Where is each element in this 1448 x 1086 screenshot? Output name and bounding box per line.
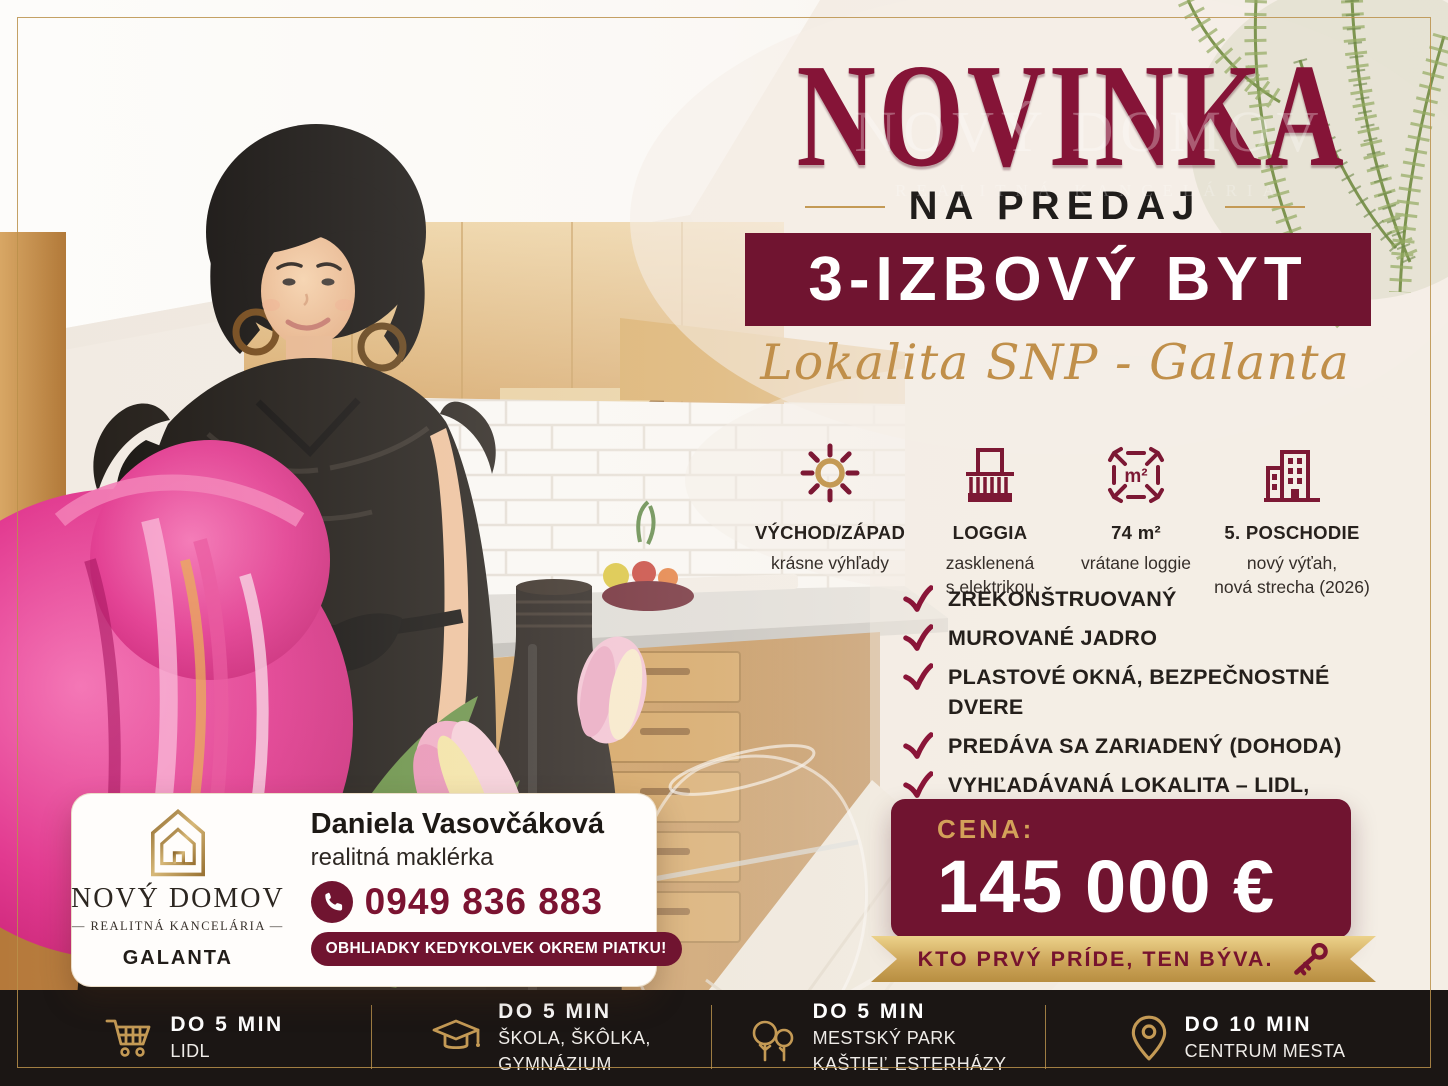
- phone-row: 0949 836 883: [311, 881, 603, 923]
- location-script: Lokalita SNP - Galanta: [700, 334, 1410, 391]
- feature-title: VÝCHOD/ZÁPAD: [742, 522, 918, 544]
- distance-park: DO 5 MIN MESTSKÝ PARK KAŠTIEĽ ESTERHÁZY: [711, 990, 1045, 1086]
- price-value: 145 000 €: [937, 849, 1351, 924]
- key-icon: [1287, 941, 1329, 977]
- headline-novinka: NOVINKA: [700, 42, 1410, 190]
- feature-orientation: VÝCHOD/ZÁPAD krásne výhľady: [742, 424, 918, 575]
- feature-line: krásne výhľady: [742, 551, 918, 575]
- agent-name: Daniela Vasovčáková: [311, 808, 604, 841]
- distance-text: DO 5 MIN MESTSKÝ PARK KAŠTIEĽ ESTERHÁZY: [813, 1000, 1007, 1076]
- price-label: CENA:: [937, 814, 1351, 845]
- slogan-text: KTO PRVÝ PRÍDE, TEN BÝVA.: [918, 947, 1274, 972]
- check-icon: [903, 662, 933, 692]
- bar-divider: [371, 1005, 372, 1069]
- check-icon: [903, 623, 933, 653]
- price-box: CENA: 145 000 €: [891, 799, 1351, 938]
- real-estate-flyer: NOVÝ DOMOV REALITNÁ KANCELÁRIA NOVINKA N…: [0, 0, 1448, 1086]
- phone-number: 0949 836 883: [365, 881, 603, 923]
- headline-subtitle-row: NA PREDAJ: [700, 184, 1410, 229]
- house-logo-icon: [147, 806, 209, 878]
- distance-schools: DO 5 MIN ŠKOLA, ŠKÔLKA, GYMNÁZIUM: [371, 990, 711, 1086]
- bar-divider: [1045, 1005, 1046, 1069]
- cart-icon: [105, 1016, 153, 1060]
- check-icon: [903, 731, 933, 761]
- trees-icon: [750, 1014, 796, 1062]
- graduation-cap-icon: [431, 1017, 481, 1059]
- headline-title: NOVINKA: [797, 42, 1347, 190]
- checklist-item: MUROVANÉ JADRO: [903, 623, 1358, 653]
- gold-rule-right: [1225, 206, 1305, 208]
- agency-identity: NOVÝ DOMOV — REALITNÁ KANCELÁRIA — GALAN…: [71, 793, 285, 987]
- location-pin-icon: [1130, 1014, 1168, 1062]
- property-type-banner: 3-IZBOVÝ BYT: [745, 233, 1371, 326]
- phone-icon: [311, 881, 353, 923]
- check-icon: [903, 770, 933, 800]
- agent-role: realitná maklérka: [311, 844, 494, 872]
- agency-card: NOVÝ DOMOV — REALITNÁ KANCELÁRIA — GALAN…: [71, 793, 657, 987]
- viewing-note-pill: OBHLIADKY KEDYKOLVEK OKREM PIATKU!: [311, 932, 682, 966]
- distances-bar: DO 5 MIN LIDL DO 5 MIN ŠKOLA, ŠKÔLKA, GY…: [0, 990, 1448, 1086]
- distance-text: DO 10 MIN CENTRUM MESTA: [1185, 1013, 1346, 1063]
- check-icon: [903, 584, 933, 614]
- gold-rule-left: [805, 206, 885, 208]
- area-icon-label: m²: [1124, 466, 1147, 487]
- slogan-ribbon: KTO PRVÝ PRÍDE, TEN BÝVA.: [871, 936, 1376, 982]
- building-icon: [1192, 424, 1392, 510]
- sun-icon: [742, 424, 918, 510]
- property-type-label: 3-IZBOVÝ BYT: [808, 244, 1307, 315]
- feature-title: 5. POSCHODIE: [1192, 522, 1392, 544]
- agent-info: Daniela Vasovčáková realitná maklérka 09…: [285, 793, 700, 987]
- checklist-item: ZREKONŠTRUOVANÝ: [903, 584, 1358, 614]
- feature-line: nový výťah,: [1192, 551, 1392, 575]
- checklist-item: PREDÁVA SA ZARIADENÝ (DOHODA): [903, 731, 1358, 761]
- distance-lidl: DO 5 MIN LIDL: [18, 990, 371, 1086]
- checklist-item: PLASTOVÉ OKNÁ, BEZPEČNOSTNÉ DVERE: [903, 662, 1358, 722]
- agency-name: NOVÝ DOMOV: [71, 883, 285, 915]
- distance-text: DO 5 MIN LIDL: [170, 1013, 283, 1063]
- distance-centre: DO 10 MIN CENTRUM MESTA: [1045, 990, 1430, 1086]
- bar-divider: [711, 1005, 712, 1069]
- agency-tagline: — REALITNÁ KANCELÁRIA —: [72, 919, 284, 934]
- feature-floor: 5. POSCHODIE nový výťah, nová strecha (2…: [1192, 424, 1392, 599]
- headline-subtitle: NA PREDAJ: [909, 184, 1202, 229]
- distance-text: DO 5 MIN ŠKOLA, ŠKÔLKA, GYMNÁZIUM: [498, 1000, 651, 1076]
- agency-city: GALANTA: [123, 947, 233, 970]
